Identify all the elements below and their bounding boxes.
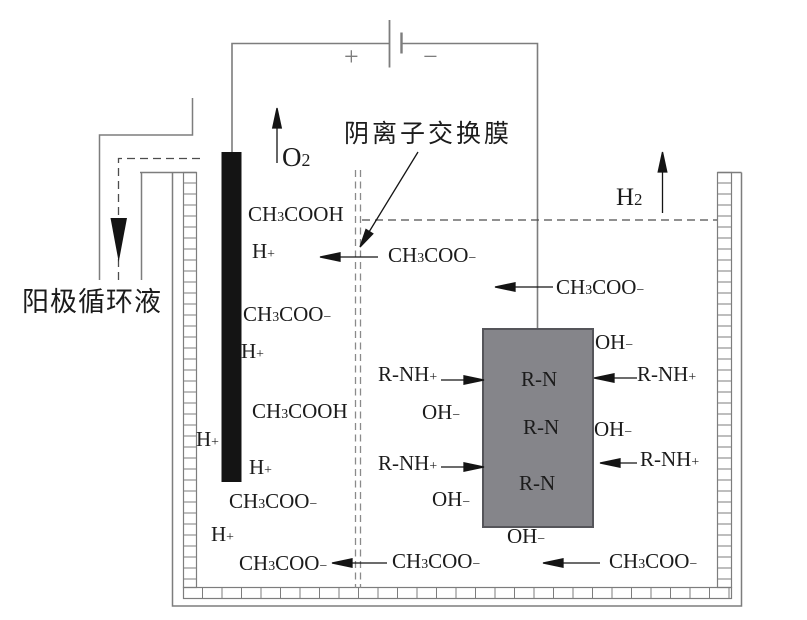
acetate-cross-membrane-arrow-bottom bbox=[332, 559, 387, 567]
tank-wall-left bbox=[184, 173, 197, 588]
anode-ch3coo-3: CH3COO− bbox=[239, 552, 327, 574]
anode-ch3coo-1: CH3COO− bbox=[243, 303, 331, 325]
anode-h-plus-1: H+ bbox=[252, 240, 275, 262]
diagram-canvas: + − 阴离子交换膜 阳极循环液 O2H2CH3COOHH+CH3COO−H+C… bbox=[0, 0, 807, 620]
anode-h-plus-4: H+ bbox=[211, 523, 234, 545]
anode-ch3cooh-1: CH3COOH bbox=[248, 203, 344, 225]
acetate-left-arrow-mid bbox=[495, 283, 553, 291]
circuit bbox=[232, 20, 538, 329]
anode-electrode bbox=[222, 152, 242, 482]
flow-down-arrow bbox=[111, 218, 128, 262]
anode-h-plus-2: H+ bbox=[241, 340, 264, 362]
rnh-left-2: R-NH+ bbox=[378, 452, 437, 474]
acetate-left-arrow-bottom bbox=[543, 559, 600, 567]
cathode-ch3coo-mid: CH3COO− bbox=[556, 276, 644, 298]
oh-right-mid: OH− bbox=[594, 418, 632, 440]
anode-h-plus-3: H+ bbox=[249, 456, 272, 478]
membrane-ch3coo: CH3COO− bbox=[388, 244, 476, 266]
anode-ch3coo-2: CH3COO− bbox=[229, 490, 317, 512]
pipe-outer-wall bbox=[100, 98, 193, 280]
tank-wall-right bbox=[718, 173, 732, 588]
rnh-left-arrow-2 bbox=[441, 463, 484, 471]
o2-up-arrow bbox=[273, 108, 282, 163]
bottom-ch3coo-right: CH3COO− bbox=[609, 550, 697, 572]
anolyte-circulation-label: 阳极循环液 bbox=[22, 289, 162, 316]
h2-gas-label: H2 bbox=[616, 185, 642, 211]
tank-wall-bottom bbox=[184, 588, 732, 599]
anion-membrane-label: 阴离子交换膜 bbox=[344, 122, 512, 147]
rnh-right-1: R-NH+ bbox=[637, 363, 696, 385]
rn-3: R-N bbox=[519, 472, 555, 494]
membrane-pointer-arrow bbox=[360, 152, 418, 247]
oh-left-mid: OH− bbox=[422, 401, 460, 423]
tank-outer-outline bbox=[173, 173, 742, 607]
acetate-cross-membrane-arrow bbox=[320, 253, 378, 261]
rnh-right-arrow-2 bbox=[600, 459, 637, 467]
battery-plus-sign: + bbox=[344, 44, 359, 70]
cathode-wire bbox=[402, 44, 538, 330]
rnh-left-1: R-NH+ bbox=[378, 363, 437, 385]
bottom-ch3coo-mid: CH3COO− bbox=[392, 550, 480, 572]
rn-1: R-N bbox=[521, 368, 557, 390]
anion-exchange-membrane bbox=[356, 170, 361, 588]
rn-2: R-N bbox=[523, 416, 559, 438]
oh-top-right: OH− bbox=[595, 331, 633, 353]
rnh-right-arrow-1 bbox=[594, 374, 637, 382]
anode-h-plus-wall: H+ bbox=[196, 428, 219, 450]
battery-minus-sign: − bbox=[423, 44, 438, 70]
rnh-right-2: R-NH+ bbox=[640, 448, 699, 470]
anode-ch3cooh-2: CH3COOH bbox=[252, 400, 348, 422]
oh-left-low: OH− bbox=[432, 488, 470, 510]
h2-up-arrow bbox=[658, 152, 667, 213]
rnh-left-arrow-1 bbox=[441, 376, 484, 384]
o2-gas-label: O2 bbox=[282, 143, 310, 171]
oh-bottom: OH− bbox=[507, 525, 545, 547]
